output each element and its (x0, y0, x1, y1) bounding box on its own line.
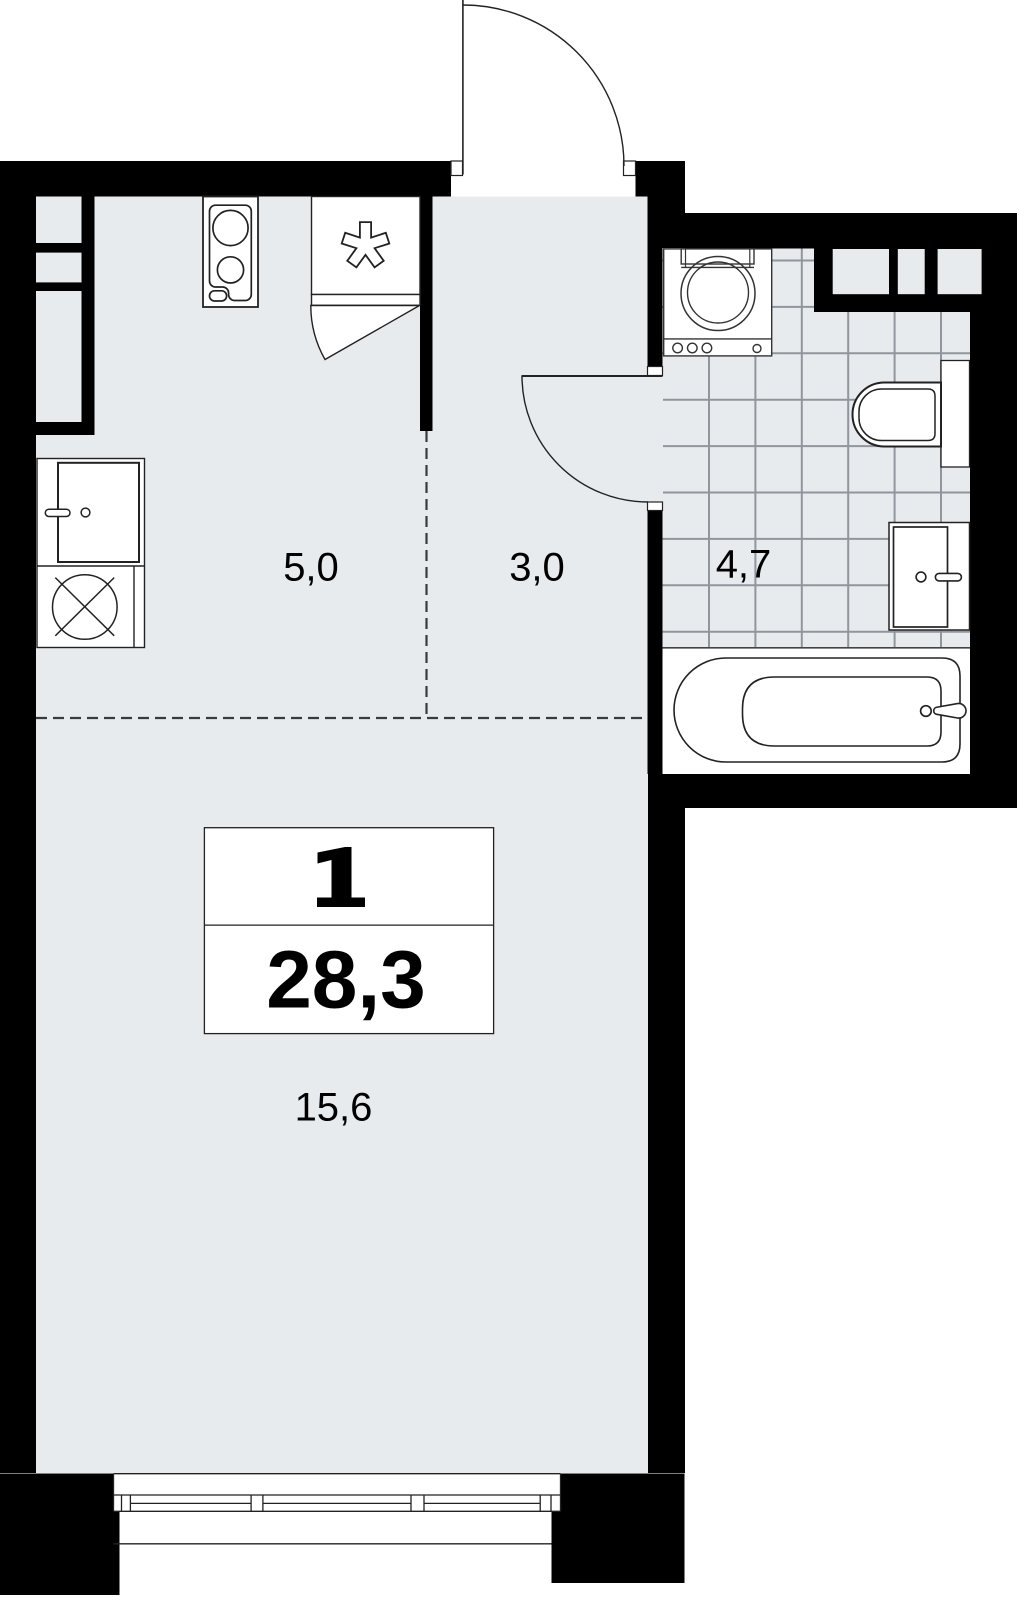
svg-text:5,0: 5,0 (283, 545, 339, 589)
svg-text:3,0: 3,0 (509, 545, 565, 589)
svg-text:15,6: 15,6 (295, 1085, 373, 1129)
svg-text:28,3: 28,3 (266, 935, 426, 1026)
svg-text:4,7: 4,7 (716, 543, 772, 587)
